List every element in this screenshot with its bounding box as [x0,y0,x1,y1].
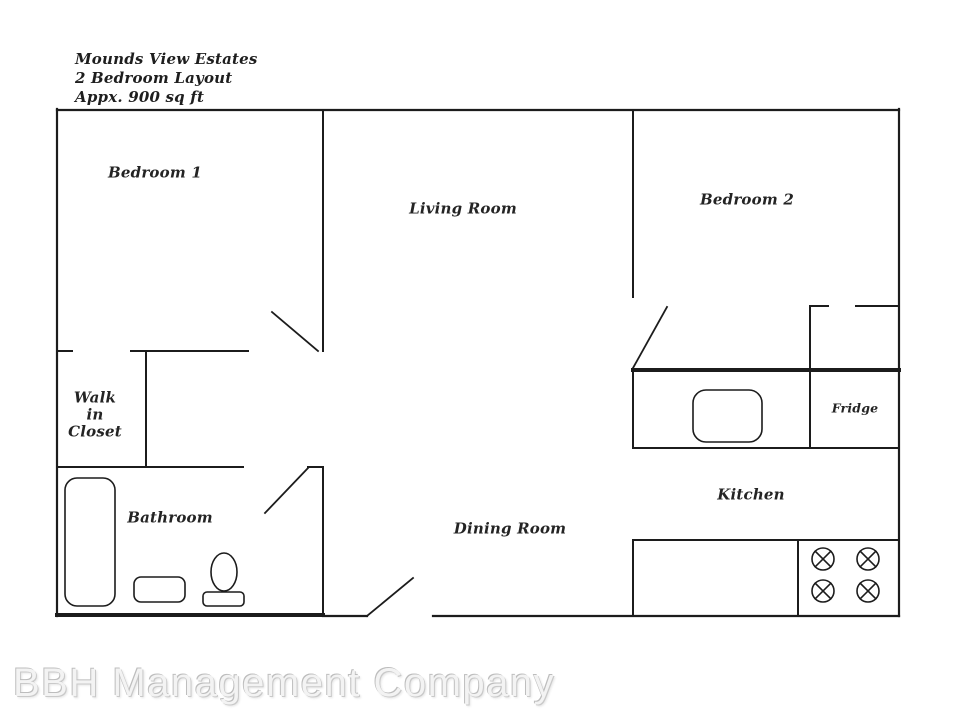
room-label-fridge: Fridge [832,400,879,417]
room-label-walk-in-closet: Walk in Closet [68,390,122,441]
kitchen-sink-icon [693,390,762,442]
stove-burner-icon [857,548,879,570]
floor-plan-page: Mounds View Estates 2 Bedroom Layout App… [0,0,960,720]
room-label-living-room: Living Room [409,201,517,218]
bedroom2-door-icon [633,307,667,368]
bedroom1-door-icon [272,312,318,351]
toilet-icon [211,553,237,591]
room-label-bedroom2: Bedroom 2 [700,192,794,209]
stove-burner-icon [812,580,834,602]
interior-walls [57,110,899,616]
bathroom-door-icon [265,468,308,513]
stove-burner-icon [812,548,834,570]
room-label-dining-room: Dining Room [454,521,566,538]
door-swings [265,307,667,616]
bathtub-icon [65,478,115,606]
room-label-kitchen: Kitchen [717,487,785,504]
bathroom-sink-icon [134,577,185,602]
floor-plan-drawing [0,0,960,720]
watermark: BBH Management Company [13,661,555,706]
toilet-tank-icon [203,592,244,606]
room-label-bathroom: Bathroom [127,510,213,527]
entry-door-icon [367,578,413,616]
plan-title: Mounds View Estates 2 Bedroom Layout App… [75,50,258,107]
stove-burner-icon [857,580,879,602]
room-label-bedroom1: Bedroom 1 [108,165,202,182]
